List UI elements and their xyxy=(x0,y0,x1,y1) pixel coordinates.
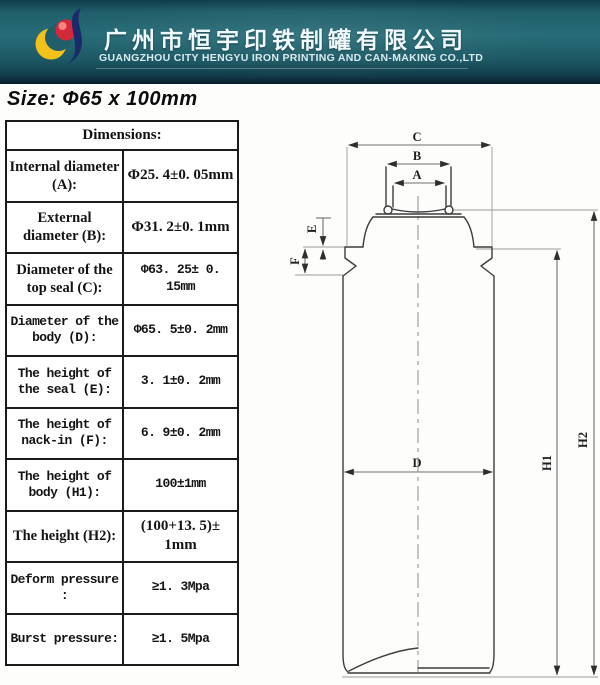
dimension-value: 6. 9±0. 2mm xyxy=(124,409,237,459)
body-left xyxy=(343,247,363,672)
dim-label-d: D xyxy=(412,456,421,470)
cup-curl-left xyxy=(384,206,392,214)
dome-right xyxy=(464,217,474,247)
company-name-en: GUANGZHOU CITY HENGYU IRON PRINTING AND … xyxy=(99,52,483,64)
dimension-label: Diameter of the body (D): xyxy=(7,306,124,356)
dim-label-a: A xyxy=(412,168,421,182)
dimension-label: The height of the seal (E): xyxy=(7,357,124,407)
dimensions-table-body: Internal diameter (A):Φ25. 4±0. 05mmExte… xyxy=(7,151,237,664)
dimension-label: Burst pressure: xyxy=(7,615,124,665)
logo-swoosh-icon xyxy=(68,8,82,64)
header-band: 广州市恒宇印铁制罐有限公司 GUANGZHOU CITY HENGYU IRON… xyxy=(0,0,600,84)
dimension-row: The height of body (H1):100±1mm xyxy=(7,460,237,512)
dimension-row: The height of nack-in (F):6. 9±0. 2mm xyxy=(7,409,237,461)
logo-crescent-icon xyxy=(36,29,67,60)
dim-label-c: C xyxy=(412,130,421,144)
dim-label-h1: H1 xyxy=(540,455,554,471)
dimension-row: Burst pressure:≥1. 5Mpa xyxy=(7,615,237,665)
dimension-value: Φ65. 5±0. 2mm xyxy=(124,306,237,356)
dimension-lines xyxy=(305,145,594,675)
dimension-value: Φ25. 4±0. 05mm xyxy=(124,151,237,201)
dimension-row: Internal diameter (A):Φ25. 4±0. 05mm xyxy=(7,151,237,203)
company-name-cn: 广州市恒宇印铁制罐有限公司 xyxy=(104,21,468,55)
dimension-value: ≥1. 5Mpa xyxy=(124,615,237,665)
bottom-dome-arc xyxy=(349,648,418,671)
dim-label-e: E xyxy=(305,225,319,233)
dimension-row: The height (H2):(100+13. 5)± 1mm xyxy=(7,512,237,564)
extension-lines xyxy=(295,147,598,677)
header-divider xyxy=(96,68,468,69)
dimension-row: Deform pressure :≥1. 3Mpa xyxy=(7,563,237,615)
dimension-label: Deform pressure : xyxy=(7,563,124,613)
dimensions-table: Dimensions: Internal diameter (A):Φ25. 4… xyxy=(5,120,239,666)
dimension-label: Diameter of the top seal (C): xyxy=(7,254,124,304)
dimension-row: Diameter of the body (D):Φ65. 5±0. 2mm xyxy=(7,306,237,358)
dimension-value: ≥1. 3Mpa xyxy=(124,563,237,613)
dim-label-h2: H2 xyxy=(576,432,590,448)
dimension-label: Internal diameter (A): xyxy=(7,151,124,201)
dimension-label: The height of nack-in (F): xyxy=(7,409,124,459)
dome-left xyxy=(363,217,373,247)
dimension-value: 100±1mm xyxy=(124,460,237,510)
logo-ball-icon xyxy=(56,20,77,41)
dim-label-f: F xyxy=(288,257,302,265)
dimension-value: Φ63. 25± 0. 15mm xyxy=(124,254,237,304)
logo-crescent-cut xyxy=(45,24,72,51)
logo-ball-highlight xyxy=(59,22,67,30)
size-title: Size: Φ65 x 100mm xyxy=(7,88,198,111)
dimension-row: Diameter of the top seal (C):Φ63. 25± 0.… xyxy=(7,254,237,306)
dimension-value: Φ31. 2±0. 1mm xyxy=(124,203,237,253)
body-right xyxy=(474,247,494,672)
cup-curl-right xyxy=(445,206,453,214)
dimension-label: External diameter (B): xyxy=(7,203,124,253)
company-logo xyxy=(28,5,94,69)
technical-drawing: C B A D E F H1 H2 xyxy=(235,110,600,685)
dimension-row: The height of the seal (E):3. 1±0. 2mm xyxy=(7,357,237,409)
dimension-label: The height (H2): xyxy=(7,512,124,562)
dimension-value: (100+13. 5)± 1mm xyxy=(124,512,237,562)
dimension-label: The height of body (H1): xyxy=(7,460,124,510)
dimensions-table-title: Dimensions: xyxy=(7,122,237,151)
dimension-value: 3. 1±0. 2mm xyxy=(124,357,237,407)
dim-label-b: B xyxy=(413,149,421,163)
dimension-row: External diameter (B):Φ31. 2±0. 1mm xyxy=(7,203,237,255)
